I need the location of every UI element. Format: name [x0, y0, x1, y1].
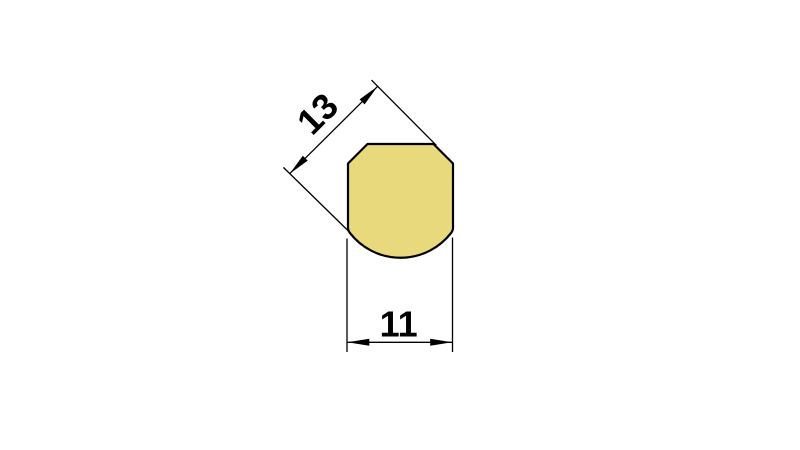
svg-text:11: 11: [380, 304, 418, 345]
